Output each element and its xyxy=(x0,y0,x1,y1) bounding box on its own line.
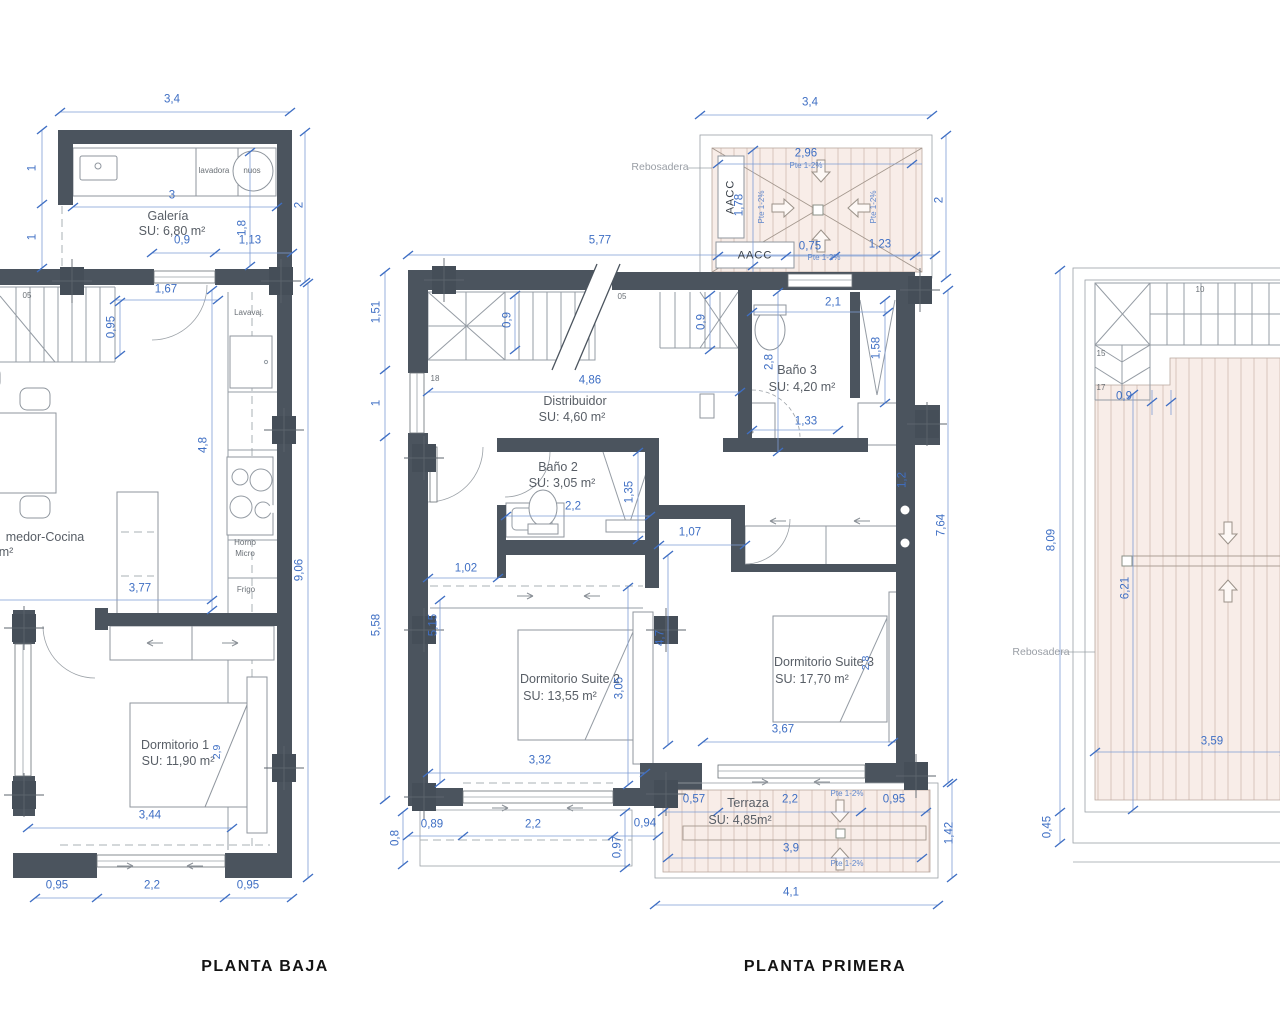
dim-label: 0,89 xyxy=(421,819,443,831)
dim-label: 6,21 xyxy=(1120,577,1132,599)
dim-label: 0,95 xyxy=(883,794,905,806)
aacc-unit-label: AACC xyxy=(738,251,773,262)
aacc-unit-label: AACC xyxy=(726,180,737,215)
dim-label: 1,13 xyxy=(239,235,261,247)
floorplan-linework xyxy=(0,0,1280,1024)
dim-label: 2,2 xyxy=(782,794,798,806)
dim-label: 3,4 xyxy=(164,94,180,106)
room-label-suite2: Dormitorio Suite 2 xyxy=(520,673,620,686)
dim-label: 2 xyxy=(934,197,946,203)
slope-label: Pte 1-2% xyxy=(758,191,766,224)
stair-step-label: 15 xyxy=(1097,350,1106,358)
dim-label: 2,9 xyxy=(212,745,223,760)
rebosadera-label: Rebosadera xyxy=(1012,647,1069,658)
dim-label: 3,9 xyxy=(783,843,799,855)
room-area-distribuidor: SU: 4,60 m² xyxy=(539,411,606,424)
dim-label: 1,23 xyxy=(869,239,891,251)
dim-label: 2 xyxy=(294,202,306,208)
stair-step-label: 05 xyxy=(618,293,627,301)
appliance-label-horno: Horno xyxy=(234,539,256,547)
room-label-comedor: medor-Cocina xyxy=(6,531,85,544)
appliance-label-frigo: Frigo xyxy=(237,586,255,594)
dim-label: 2,2 xyxy=(525,819,541,831)
slope-label: Pte 1-2% xyxy=(808,254,841,262)
dim-label: 1,07 xyxy=(679,527,701,539)
slope-label: Pte 1-2% xyxy=(870,191,878,224)
dim-label: 2,8 xyxy=(861,656,872,671)
appliance-label-lavavajillas: Lavavaj. xyxy=(234,309,264,317)
dim-label: 1,2 xyxy=(897,472,909,488)
pp-bano3-fixtures xyxy=(745,300,898,447)
dim-label: 2,2 xyxy=(565,501,581,513)
dim-label: 4,8 xyxy=(198,437,210,453)
stair-step-label: 17 xyxy=(1097,384,1106,392)
dim-label: 4,7 xyxy=(655,630,667,646)
dim-label: 1,58 xyxy=(871,337,883,359)
slope-label: Pte 1-2% xyxy=(831,790,864,798)
sol-plan xyxy=(1055,266,1280,862)
dim-label: 1,67 xyxy=(155,284,177,296)
rebosadera-label: Rebosadera xyxy=(631,162,688,173)
dim-label: 5,15 xyxy=(428,614,440,636)
stair-step-label: 05 xyxy=(23,292,32,300)
dim-label: 3,05 xyxy=(614,677,626,699)
dim-label: 1 xyxy=(27,165,39,171)
pb-dorm1-furniture xyxy=(110,626,274,833)
room-label-bano3: Baño 3 xyxy=(777,364,817,377)
dim-label: 7,64 xyxy=(936,514,948,536)
dim-label: 3,44 xyxy=(139,810,161,822)
dim-label: 0,9 xyxy=(696,314,708,330)
dim-label: 1 xyxy=(27,234,39,240)
dim-label: 2,2 xyxy=(144,880,160,892)
dim-label: 4,86 xyxy=(579,375,601,387)
appliance-label-micro: Micro xyxy=(235,550,255,558)
dim-label: 0,8 xyxy=(390,830,402,846)
stair-step-label: 18 xyxy=(431,375,440,383)
dim-label: 1,02 xyxy=(455,563,477,575)
dim-label: 1,35 xyxy=(624,481,636,503)
appliance-label-nuos: nuos xyxy=(243,167,260,175)
dim-label: 0,95 xyxy=(237,880,259,892)
appliance-label-lavadora: lavadora xyxy=(199,167,230,175)
room-area-bano2: SU: 3,05 m² xyxy=(529,477,596,490)
dim-label: 0,94 xyxy=(634,818,656,830)
room-label-dorm1: Dormitorio 1 xyxy=(141,739,209,752)
dim-label: 0,95 xyxy=(106,316,118,338)
room-label-terraza: Terraza xyxy=(727,797,769,810)
dim-label: 2,1 xyxy=(825,297,841,309)
dim-label: 1,51 xyxy=(371,301,383,323)
room-label-distribuidor: Distribuidor xyxy=(543,395,606,408)
dim-label: 1 xyxy=(371,400,383,406)
dim-label: 1,33 xyxy=(795,416,817,428)
dim-label: 0,9 xyxy=(502,312,514,328)
dim-label: 2,96 xyxy=(795,148,817,160)
room-area-galeria: SU: 6,80 m² xyxy=(139,225,206,238)
dim-label: 0,75 xyxy=(799,241,821,253)
dim-label: 8,09 xyxy=(1046,529,1058,551)
plan-title-planta-baja: PLANTA BAJA xyxy=(201,959,329,975)
dim-label: 4,1 xyxy=(783,887,799,899)
dim-label: 3,32 xyxy=(529,755,551,767)
slope-label: Pte 1-2% xyxy=(790,162,823,170)
room-area-bano3: SU: 4,20 m² xyxy=(769,381,836,394)
dim-label: 0,45 xyxy=(1042,816,1054,838)
dim-label: 3,77 xyxy=(129,583,151,595)
dim-label: 3 xyxy=(169,190,175,202)
dim-label: 3,59 xyxy=(1201,736,1223,748)
room-label-bano2: Baño 2 xyxy=(538,461,578,474)
dim-label: 1,42 xyxy=(944,822,956,844)
room-area-comedor: m² xyxy=(0,546,13,559)
slope-label: Pte 1-2% xyxy=(831,860,864,868)
dim-label: 0,97 xyxy=(612,836,624,858)
room-label-galeria: Galería xyxy=(148,210,189,223)
pp-plan xyxy=(380,111,957,909)
room-area-terraza: SU: 4,85m² xyxy=(708,814,771,827)
room-area-dorm1: SU: 11,90 m² xyxy=(142,755,215,768)
dim-label: 3,4 xyxy=(802,97,818,109)
dim-label: 5,58 xyxy=(371,614,383,636)
dim-label: 2,8 xyxy=(764,354,776,370)
room-area-suite2: SU: 13,55 m² xyxy=(523,690,597,703)
dim-label: 0,95 xyxy=(46,880,68,892)
stair-step-label: 10 xyxy=(1196,286,1205,294)
pb-dining xyxy=(0,367,158,616)
room-area-suite3: SU: 17,70 m² xyxy=(775,673,849,686)
plan-title-planta-primera: PLANTA PRIMERA xyxy=(744,959,906,975)
dim-label: 0,57 xyxy=(683,794,705,806)
dim-label: 5,77 xyxy=(589,235,611,247)
dim-label: 3,67 xyxy=(772,724,794,736)
pb-stairs xyxy=(0,287,115,362)
floorplan-sheet: 3,4 3 1,8 2 1 1 0,9 1,13 Galería SU: 6,8… xyxy=(0,0,1280,1024)
dim-label: 9,06 xyxy=(294,559,306,581)
dim-label: 0,9 xyxy=(1116,391,1132,403)
